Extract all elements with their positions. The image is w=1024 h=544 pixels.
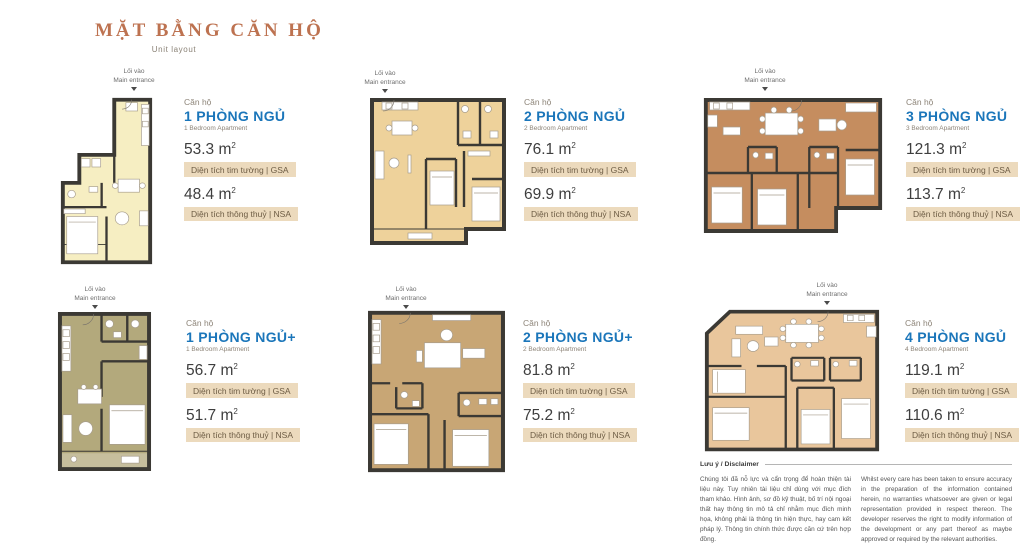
floor-plan-1-bedroom bbox=[58, 97, 155, 265]
bed bbox=[801, 410, 830, 444]
tv-console bbox=[765, 337, 778, 346]
toilet bbox=[814, 152, 820, 158]
page-title: MẶT BẰNG CĂN HỘ bbox=[95, 20, 324, 42]
entrance-label-en: Main entrance bbox=[60, 295, 130, 304]
unit-info-1-bedroom-plus: Căn hộ 1 PHÒNG NGỦ+ 1 Bedroom Apartment … bbox=[186, 318, 338, 442]
nsa-area: 113.7 m2 bbox=[906, 186, 1024, 204]
unit-subtitle: 3 Bedroom Apartment bbox=[906, 125, 1024, 132]
unit-subtitle: 2 Bedroom Apartment bbox=[523, 346, 675, 353]
sink bbox=[490, 131, 498, 138]
coffee-table bbox=[389, 158, 399, 168]
entrance-label-en: Main entrance bbox=[371, 295, 441, 304]
bed bbox=[430, 171, 454, 205]
sink bbox=[463, 131, 471, 138]
entrance-arrow-icon bbox=[824, 301, 830, 305]
armchair bbox=[139, 211, 148, 226]
wardrobe bbox=[64, 209, 85, 214]
gsa-area: 81.8 m2 bbox=[523, 362, 675, 380]
bed bbox=[374, 424, 408, 465]
bed bbox=[67, 216, 98, 253]
nsa-area: 69.9 m2 bbox=[524, 186, 676, 204]
unit-title: 1 PHÒNG NGỦ+ bbox=[186, 329, 338, 345]
washer bbox=[491, 399, 498, 405]
floor-plan-1-bedroom-plus bbox=[56, 310, 153, 473]
gsa-label: Diện tích tim tường | GSA bbox=[523, 383, 635, 398]
gsa-area: 56.7 m2 bbox=[186, 362, 338, 380]
entrance-arrow-icon bbox=[131, 87, 137, 91]
floor-plan-3-bedroom bbox=[702, 95, 884, 235]
nsa-label: Diện tích thông thuỷ | NSA bbox=[524, 207, 638, 222]
bed bbox=[758, 189, 787, 225]
nsa-area: 75.2 m2 bbox=[523, 407, 675, 425]
bed bbox=[472, 187, 500, 221]
nsa-label: Diện tích thông thuỷ | NSA bbox=[184, 207, 298, 222]
tv bbox=[408, 155, 411, 173]
kitchen bbox=[372, 320, 381, 364]
entrance-label: Lối vào Main entrance bbox=[792, 282, 862, 305]
desk bbox=[819, 119, 836, 131]
entrance-arrow-icon bbox=[92, 305, 98, 309]
sink bbox=[827, 153, 835, 159]
unit-label: Căn hộ bbox=[905, 318, 1024, 328]
disclaimer-rule bbox=[765, 464, 1012, 465]
nsa-area: 51.7 m2 bbox=[186, 407, 338, 425]
gsa-area: 76.1 m2 bbox=[524, 141, 676, 159]
bed bbox=[713, 408, 750, 441]
disclaimer-vietnamese: Chúng tôi đã nỗ lực và cẩn trọng để hoàn… bbox=[700, 475, 851, 544]
entrance-label-vn: Lối vào bbox=[730, 68, 800, 77]
nsa-label: Diện tích thông thuỷ | NSA bbox=[906, 207, 1020, 222]
unit-label: Căn hộ bbox=[906, 97, 1024, 107]
unit-label: Căn hộ bbox=[524, 97, 676, 107]
gsa-area: 121.3 m2 bbox=[906, 141, 1024, 159]
entrance-label: Lối vào Main entrance bbox=[730, 68, 800, 91]
bed bbox=[713, 370, 746, 394]
gsa-label: Diện tích tim tường | GSA bbox=[524, 162, 636, 177]
unit-info-2-bedroom: Căn hộ 2 PHÒNG NGỦ 2 Bedroom Apartment 7… bbox=[524, 97, 676, 221]
unit-info-4-bedroom: Căn hộ 4 PHÒNG NGỦ 4 Bedroom Apartment 1… bbox=[905, 318, 1024, 442]
sink bbox=[113, 332, 121, 338]
gsa-area: 53.3 m2 bbox=[184, 141, 336, 159]
unit-info-2-bedroom-plus: Căn hộ 2 PHÒNG NGỦ+ 2 Bedroom Apartment … bbox=[523, 318, 675, 442]
kitchen bbox=[62, 326, 71, 371]
toilet bbox=[68, 190, 76, 197]
floor-plan-2-bedroom-plus bbox=[366, 308, 507, 474]
toilet bbox=[794, 361, 800, 366]
bed bbox=[453, 430, 489, 467]
toilet bbox=[833, 361, 839, 366]
sink bbox=[479, 399, 487, 405]
washer bbox=[81, 159, 90, 167]
entrance-label: Lối vào Main entrance bbox=[99, 68, 169, 91]
gsa-label: Diện tích tim tường | GSA bbox=[906, 162, 1018, 177]
toilet bbox=[753, 152, 759, 158]
page-subtitle: Unit layout bbox=[95, 45, 253, 54]
entrance-label-vn: Lối vào bbox=[60, 286, 130, 295]
unit-subtitle: 1 Bedroom Apartment bbox=[186, 346, 338, 353]
sink bbox=[811, 361, 819, 366]
gsa-label: Diện tích tim tường | GSA bbox=[905, 383, 1017, 398]
balcony-bench bbox=[121, 456, 139, 463]
entrance-label-vn: Lối vào bbox=[371, 286, 441, 295]
closet bbox=[92, 159, 101, 167]
sink bbox=[765, 153, 773, 159]
unit-info-3-bedroom: Căn hộ 3 PHÒNG NGỦ 3 Bedroom Apartment 1… bbox=[906, 97, 1024, 221]
entrance-arrow-icon bbox=[382, 89, 388, 93]
unit-subtitle: 2 Bedroom Apartment bbox=[524, 125, 676, 132]
bed bbox=[712, 187, 743, 223]
nsa-label: Diện tích thông thuỷ | NSA bbox=[905, 428, 1019, 443]
unit-title: 2 PHÒNG NGỦ bbox=[524, 108, 676, 124]
entrance-label-en: Main entrance bbox=[350, 79, 420, 88]
unit-title: 1 PHÒNG NGỦ bbox=[184, 108, 336, 124]
sofa bbox=[375, 151, 384, 179]
entrance-label-en: Main entrance bbox=[792, 291, 862, 300]
entrance-label: Lối vào Main entrance bbox=[350, 70, 420, 93]
balcony-bench bbox=[408, 233, 432, 239]
toilet bbox=[463, 399, 470, 406]
disclaimer: Lưu ý / Disclaimer Chúng tôi đã nỗ lực v… bbox=[700, 461, 1012, 544]
unit-subtitle: 4 Bedroom Apartment bbox=[905, 346, 1024, 353]
sink bbox=[89, 187, 98, 193]
closet bbox=[139, 346, 147, 360]
entrance-label-en: Main entrance bbox=[99, 77, 169, 86]
entrance-label-vn: Lối vào bbox=[792, 282, 862, 291]
gsa-area: 119.1 m2 bbox=[905, 362, 1024, 380]
entrance-label-en: Main entrance bbox=[730, 77, 800, 86]
coffee-table bbox=[115, 212, 129, 225]
entrance-label-vn: Lối vào bbox=[99, 68, 169, 77]
gsa-label: Diện tích tim tường | GSA bbox=[186, 383, 298, 398]
entrance-label-vn: Lối vào bbox=[350, 70, 420, 79]
disclaimer-heading: Lưu ý / Disclaimer bbox=[700, 461, 759, 468]
entrance-arrow-icon bbox=[762, 87, 768, 91]
entrance-label: Lối vào Main entrance bbox=[60, 286, 130, 309]
floor-plan-2-bedroom bbox=[368, 95, 508, 247]
nsa-area: 110.6 m2 bbox=[905, 407, 1024, 425]
sink bbox=[849, 361, 857, 366]
toilet bbox=[131, 320, 139, 328]
nsa-area: 48.4 m2 bbox=[184, 186, 336, 204]
sofa bbox=[63, 415, 72, 443]
gsa-label: Diện tích tim tường | GSA bbox=[184, 162, 296, 177]
unit-label: Căn hộ bbox=[184, 97, 336, 107]
toilet bbox=[485, 106, 492, 113]
wardrobe bbox=[468, 151, 490, 156]
shelf bbox=[432, 315, 470, 321]
unit-subtitle: 1 Bedroom Apartment bbox=[184, 125, 336, 132]
disclaimer-english: Whilst every care has been taken to ensu… bbox=[861, 475, 1012, 544]
toilet bbox=[401, 391, 408, 398]
unit-label: Căn hộ bbox=[186, 318, 338, 328]
bed bbox=[842, 399, 871, 439]
unit-title: 2 PHÒNG NGỦ+ bbox=[523, 329, 675, 345]
sink bbox=[412, 401, 419, 407]
toilet bbox=[105, 320, 113, 328]
floor-plan-4-bedroom bbox=[703, 308, 881, 453]
plant bbox=[71, 456, 77, 462]
nsa-label: Diện tích thông thuỷ | NSA bbox=[523, 428, 637, 443]
unit-title: 4 PHÒNG NGỦ bbox=[905, 329, 1024, 345]
kitchen bbox=[382, 102, 418, 110]
unit-title: 3 PHÒNG NGỦ bbox=[906, 108, 1024, 124]
unit-info-1-bedroom: Căn hộ 1 PHÒNG NGỦ 1 Bedroom Apartment 5… bbox=[184, 97, 336, 221]
armchair bbox=[837, 120, 847, 130]
unit-label: Căn hộ bbox=[523, 318, 675, 328]
bed bbox=[109, 405, 145, 445]
toilet bbox=[462, 106, 469, 113]
nsa-label: Diện tích thông thuỷ | NSA bbox=[186, 428, 300, 443]
sofa bbox=[846, 103, 877, 112]
bed bbox=[846, 159, 875, 195]
entrance-label: Lối vào Main entrance bbox=[371, 286, 441, 309]
coffee-table bbox=[79, 422, 93, 436]
